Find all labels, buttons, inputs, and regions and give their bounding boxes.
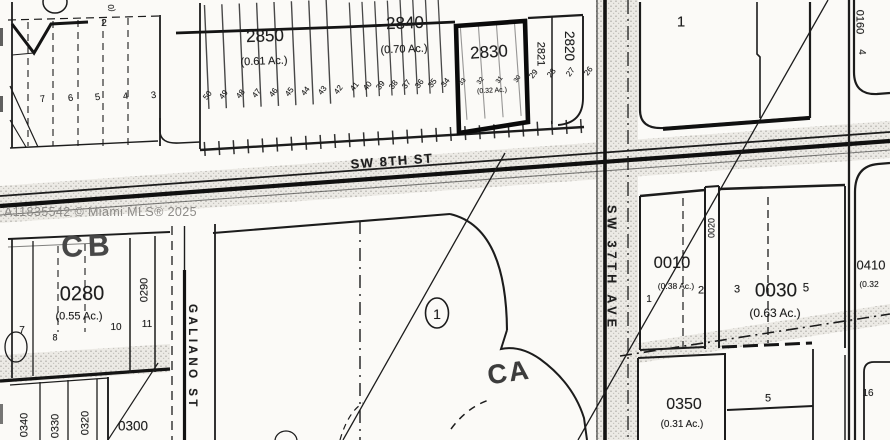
- parcel-id-2850: 2850: [246, 27, 284, 45]
- street-label-galiano-st: GALIANO ST: [185, 304, 197, 410]
- parcel-id-0290: 0290: [140, 278, 151, 302]
- lot-number-10: 10: [110, 323, 121, 333]
- partial-area-label: (0: [108, 4, 116, 11]
- parcel-id-0280: 0280: [60, 284, 105, 305]
- parcel-id-0010: 0010: [654, 255, 691, 272]
- street-label-sw-37th-ave: SW 37TH AVE: [605, 205, 618, 331]
- cross-street-left-band: [0, 344, 170, 383]
- mls-watermark: A11835542 © Miami MLS® 2025: [4, 206, 197, 219]
- lot-number: 6: [67, 93, 74, 105]
- lot-number: 7: [39, 94, 46, 106]
- parcel-area-2840: (0.70 Ac.): [380, 44, 427, 57]
- parcel-id-0340: 0340: [20, 413, 31, 437]
- lot-number-2: 2: [698, 286, 704, 297]
- map-linework: [0, 0, 890, 440]
- lot-number-2: 2: [101, 19, 107, 29]
- parcel-id-2840: 2840: [386, 14, 424, 32]
- lot-number-5-0350: 5: [765, 394, 771, 405]
- lot-number-16: 16: [862, 389, 873, 399]
- lot-number-4: 4: [856, 49, 866, 55]
- zoning-label-cb: CB: [61, 231, 115, 263]
- lot-number-5: 5: [803, 283, 809, 295]
- parcel-id-0320: 0320: [81, 411, 92, 435]
- parcel-area-0010: (0.38 Ac.): [658, 282, 694, 291]
- parcel-id-0020: 0020: [708, 218, 717, 238]
- lot-number-8: 8: [52, 334, 57, 343]
- parcel-area-0410: (0.32: [859, 280, 878, 289]
- lot-number-3: 3: [734, 285, 740, 296]
- lot-number-11: 11: [142, 320, 152, 330]
- lot-number: 3: [150, 90, 157, 102]
- parcel-id-0350: 0350: [666, 397, 702, 413]
- parcel-id-0410: 0410: [857, 259, 886, 272]
- parcel-area-2850: (0.61 Ac.): [240, 56, 287, 69]
- parcel-id-2820: 2820: [562, 31, 576, 61]
- zoning-label-ca: CA: [486, 357, 532, 390]
- parcel-id-0300: 0300: [118, 419, 148, 433]
- parcel-area-0350: (0.31 Ac.): [661, 420, 704, 430]
- parcel-area-0280: (0.55 Ac.): [55, 312, 102, 323]
- lot-number: 4: [122, 91, 129, 103]
- circled-lot-number-1: 1: [433, 307, 441, 321]
- lot-number: 5: [95, 92, 102, 104]
- parcel-id-0160: 0160: [854, 10, 865, 34]
- parcel-id-0030: 0030: [755, 282, 797, 301]
- parcel-id-2821: 2821: [535, 42, 546, 66]
- plat-map: A11835542 © Miami MLS® 2025 SW 8TH ST SW…: [0, 0, 890, 440]
- lot-number-1: 1: [646, 295, 652, 305]
- lot-number-7: 7: [19, 326, 25, 336]
- parcel-area-0030: (0.63 Ac.): [749, 307, 800, 319]
- subject-parcel-id-2830: 2830: [470, 42, 509, 62]
- parcel-id-0330: 0330: [51, 414, 62, 438]
- lot-number-block1: 1: [677, 15, 685, 30]
